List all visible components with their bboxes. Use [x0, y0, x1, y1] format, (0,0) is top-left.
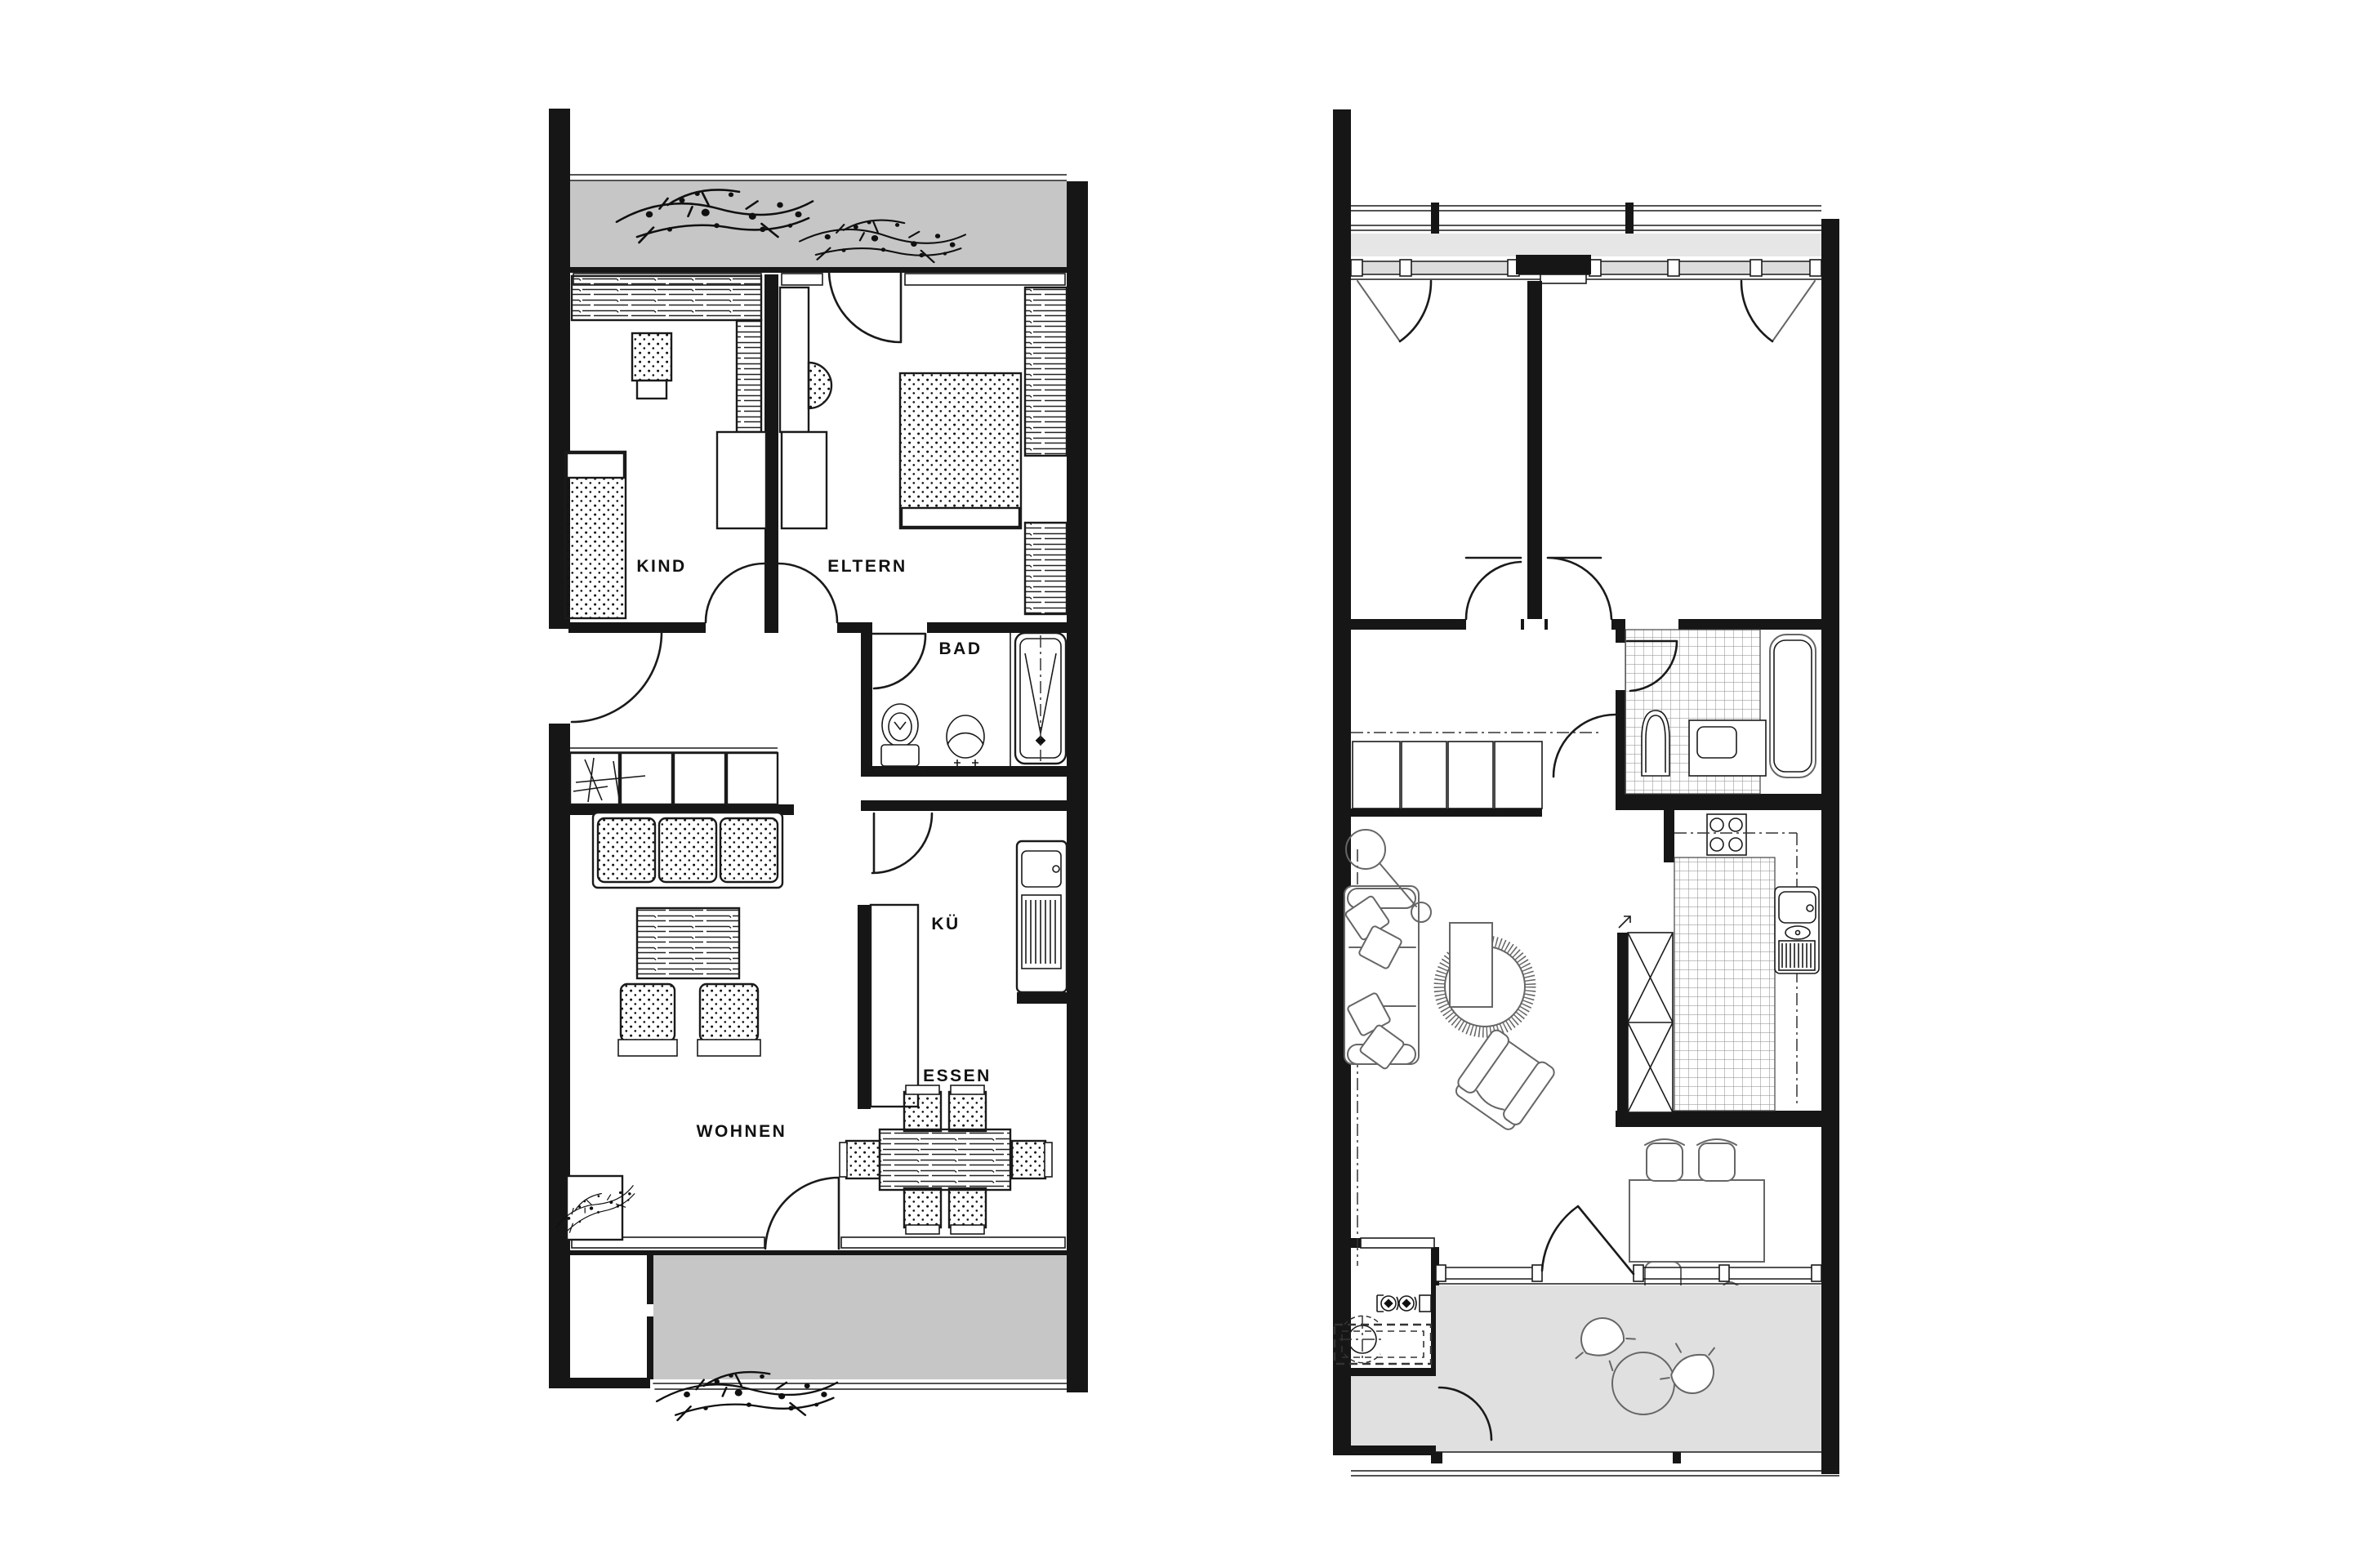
dining-chair — [1697, 1139, 1736, 1181]
desk-chair — [637, 381, 666, 399]
kind-door-arc — [706, 563, 764, 622]
kitchen-door-arc — [872, 813, 932, 873]
loggia-top-right-plan — [1351, 203, 1821, 341]
armchair — [621, 984, 675, 1041]
bedroom-door-left-arc — [1466, 558, 1521, 619]
faucet — [1053, 866, 1059, 872]
loggia-door-arc — [829, 272, 901, 342]
dining-table — [880, 1129, 1010, 1190]
balcony-bottom-left-plan — [647, 1255, 1072, 1389]
closet — [780, 287, 809, 432]
toilet — [947, 715, 984, 758]
hall-cabinet — [727, 753, 778, 804]
dressing-area — [780, 287, 831, 528]
sink-basin — [1779, 892, 1816, 923]
kitchen-right-plan — [1617, 814, 1819, 1112]
entry-door-arc — [572, 632, 662, 722]
armchair-back — [698, 1040, 760, 1056]
loggia-door-left-arc — [1400, 281, 1431, 341]
bad-door-arc — [872, 634, 925, 688]
armchair — [700, 984, 758, 1041]
label-essen: ESSEN — [923, 1067, 992, 1085]
balcony-door-arc — [765, 1178, 839, 1249]
label-eltern: ELTERN — [827, 557, 907, 576]
central-wall — [1527, 281, 1542, 619]
coffee-table — [1450, 923, 1492, 1007]
sofa-cushion — [598, 818, 655, 882]
chair — [949, 1092, 986, 1131]
hall-cabinet — [1495, 742, 1542, 808]
chair — [1012, 1141, 1045, 1178]
room-wohnen — [567, 748, 782, 1240]
double-bed — [900, 373, 1021, 528]
hall-cabinet — [1448, 742, 1493, 808]
dining-chair — [1645, 1139, 1684, 1181]
dining-table — [1629, 1180, 1764, 1262]
chair — [846, 1141, 880, 1178]
armchair-back — [618, 1040, 677, 1056]
floor-plan-drawing: KIND ELTERN BAD KÜ ESSEN WOHNEN — [0, 0, 2358, 1568]
plan-left: KIND ELTERN BAD KÜ ESSEN WOHNEN — [549, 109, 1088, 1420]
label-wohnen: WOHNEN — [697, 1122, 787, 1141]
wardrobe — [737, 320, 761, 432]
floor-plan-sheet: KIND ELTERN BAD KÜ ESSEN WOHNEN — [0, 0, 2358, 1568]
wardrobe — [1025, 287, 1067, 456]
hall-cabinet — [674, 753, 725, 804]
chair — [904, 1092, 941, 1131]
section-arrow — [1619, 916, 1630, 928]
chair — [949, 1188, 986, 1227]
bed-foot — [902, 508, 1019, 527]
label-kueche: KÜ — [931, 915, 960, 933]
desk — [632, 333, 671, 381]
stove-grill — [1026, 900, 1055, 964]
balcony-door-arc — [1542, 1206, 1634, 1274]
closet — [782, 432, 827, 528]
sofa-cushion — [720, 818, 778, 882]
closet — [717, 432, 766, 528]
pillow — [567, 453, 624, 478]
bedroom-door-right-arc — [1548, 558, 1611, 619]
plan-right — [1333, 109, 1839, 1476]
label-kind: KIND — [636, 557, 686, 576]
bathroom-right-plan — [1625, 630, 1816, 794]
niche-window — [1361, 1238, 1434, 1248]
washbasin-pedestal — [881, 745, 919, 766]
stool — [809, 363, 831, 408]
hall-cabinet — [1353, 742, 1400, 808]
wardrobe — [1025, 523, 1067, 614]
shaft — [1516, 255, 1591, 274]
loggia-door-right-arc — [1741, 281, 1772, 341]
basin — [1697, 727, 1736, 758]
tiled-floor — [1674, 857, 1775, 1111]
hall-cabinet — [621, 753, 672, 804]
appliance-row — [1377, 1295, 1431, 1312]
armchair — [1451, 1027, 1557, 1134]
dining-set — [840, 1085, 1052, 1234]
chair — [904, 1188, 941, 1227]
coffee-table — [637, 908, 739, 978]
sofa-cushion — [659, 818, 716, 882]
living-door-arc — [1553, 715, 1616, 777]
room-eltern — [900, 287, 1067, 614]
hall-cabinet — [1402, 742, 1446, 808]
kitchen-counter — [871, 905, 918, 1107]
balcony-top-left-plan — [554, 175, 1067, 267]
hall-right-plan — [1351, 715, 1616, 817]
label-bad: BAD — [939, 639, 983, 658]
wardrobe — [572, 276, 761, 320]
